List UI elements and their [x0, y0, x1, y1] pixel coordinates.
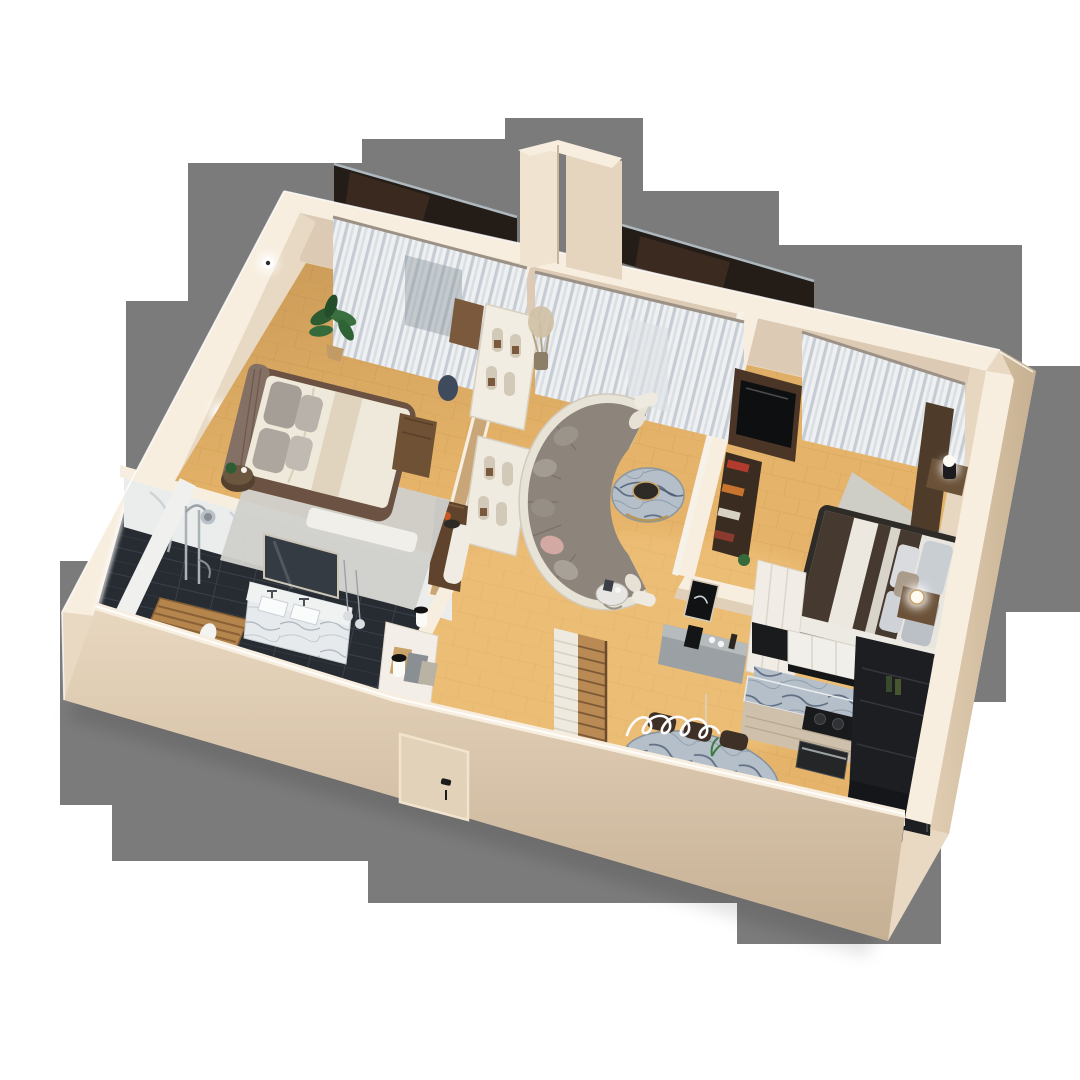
round-marble-coffee-table	[612, 468, 684, 522]
screenshot-canvas	[0, 0, 1080, 1080]
protruding-wall	[518, 140, 622, 280]
plant	[738, 554, 750, 566]
floorplan-render	[0, 0, 1080, 1080]
chair	[438, 375, 458, 401]
